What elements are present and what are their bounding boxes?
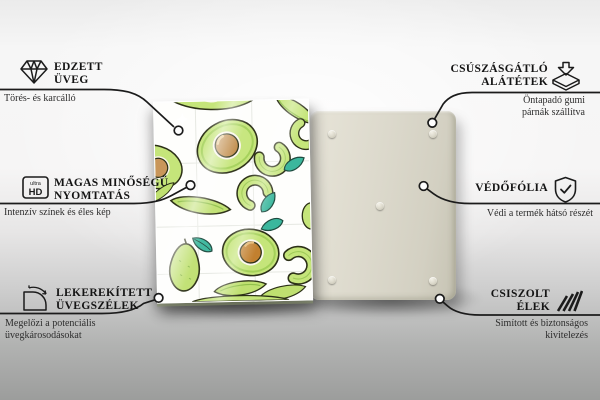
feature-subtitle-line: Törés- és karcálló [4, 93, 76, 105]
polished-edge-icon [555, 288, 583, 312]
feature-subtitle-tempered-glass: Törés- és karcálló [4, 93, 76, 105]
board-back-view [310, 111, 456, 300]
feature-title-line: ALÁTÉTEK [450, 76, 548, 89]
feature-title-line: ÜVEGSZÉLEK [56, 300, 152, 313]
feature-subtitle-line: párnák szállítva [522, 107, 585, 119]
rubber-pad [328, 276, 336, 284]
feature-subtitle-rounded-edges: Megelőzi a potenciális üvegkárosodásokat [5, 318, 96, 341]
feature-subtitle-anti-slip: Öntapadó gumi párnák szállítva [522, 95, 585, 118]
feature-subtitle-print-quality: Intenzív színek és éles kép [4, 207, 111, 219]
feature-title-anti-slip: CSÚSZÁSGÁTLÓ ALÁTÉTEK [450, 63, 548, 89]
rubber-pad [429, 277, 437, 285]
feature-title-line: MAGAS MINŐSÉGŰ [54, 177, 168, 190]
diamond-icon [19, 59, 49, 85]
rounded-corner-icon [20, 284, 50, 312]
feature-subtitle-line: Védi a termék hátsó részét [487, 208, 593, 220]
feature-title-line: CSÚSZÁSGÁTLÓ [450, 63, 548, 76]
feature-title-line: EDZETT [54, 61, 103, 74]
feature-title-line: ÉLEK [491, 301, 550, 314]
avocado-pattern-print [154, 99, 312, 302]
hd-label: HD [29, 187, 43, 198]
feature-subtitle-line: kivitelezés [495, 330, 588, 342]
board-front-view [153, 98, 313, 303]
rubber-pad [328, 130, 336, 138]
feature-subtitle-line: üvegkárosodásokat [5, 330, 96, 342]
ultra-hd-icon: ultra HD [22, 176, 49, 199]
feature-title-line: ÜVEG [54, 74, 103, 87]
feature-title-line: LEKEREKÍTETT [56, 287, 152, 300]
rubber-pad [429, 130, 437, 138]
feature-title-print-quality: MAGAS MINŐSÉGŰ NYOMTATÁS [54, 177, 168, 203]
anti-slip-pad-icon [551, 61, 581, 91]
feature-subtitle-polished-edges: Simított és biztonságos kivitelezés [495, 318, 588, 341]
feature-title-line: VÉDŐFÓLIA [475, 182, 548, 195]
feature-title-polished-edges: CSISZOLT ÉLEK [491, 288, 550, 314]
feature-title-tempered-glass: EDZETT ÜVEG [54, 61, 103, 87]
feature-subtitle-protective-film: Védi a termék hátsó részét [487, 208, 593, 220]
feature-subtitle-line: Intenzív színek és éles kép [4, 207, 111, 219]
feature-title-rounded-edges: LEKEREKÍTETT ÜVEGSZÉLEK [56, 287, 152, 313]
shield-check-icon [553, 176, 578, 203]
feature-title-protective-film: VÉDŐFÓLIA [475, 182, 548, 195]
feature-subtitle-line: Öntapadó gumi [522, 95, 585, 107]
feature-title-line: NYOMTATÁS [54, 190, 168, 203]
rubber-pad [376, 202, 384, 210]
feature-title-line: CSISZOLT [491, 288, 550, 301]
feature-subtitle-line: Simított és biztonságos [495, 318, 588, 330]
feature-subtitle-line: Megelőzi a potenciális [5, 318, 96, 330]
product-feature-infographic: EDZETT ÜVEG Törés- és karcálló ultra HD … [0, 0, 600, 400]
